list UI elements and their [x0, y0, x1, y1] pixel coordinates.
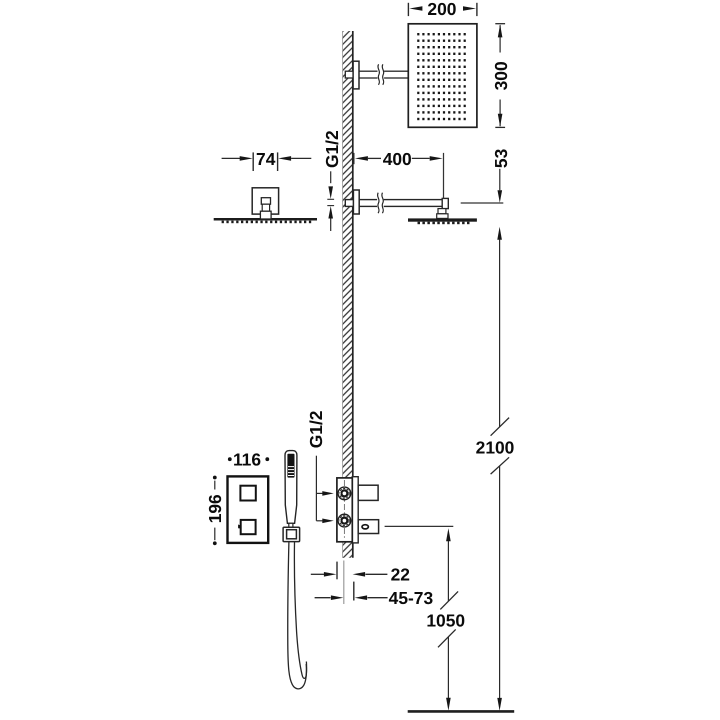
svg-text:200: 200	[427, 0, 456, 19]
svg-text:45-73: 45-73	[389, 588, 434, 608]
svg-text:300: 300	[491, 61, 511, 90]
svg-text:74: 74	[256, 149, 276, 169]
svg-text:2100: 2100	[476, 438, 515, 458]
svg-text:1050: 1050	[426, 611, 465, 631]
svg-text:116: 116	[233, 449, 261, 469]
svg-text:G1/2: G1/2	[322, 130, 342, 168]
svg-text:196: 196	[205, 494, 225, 523]
svg-text:53: 53	[491, 148, 511, 168]
svg-text:400: 400	[383, 149, 412, 169]
svg-text:22: 22	[391, 565, 410, 585]
svg-text:G1/2: G1/2	[306, 411, 326, 449]
